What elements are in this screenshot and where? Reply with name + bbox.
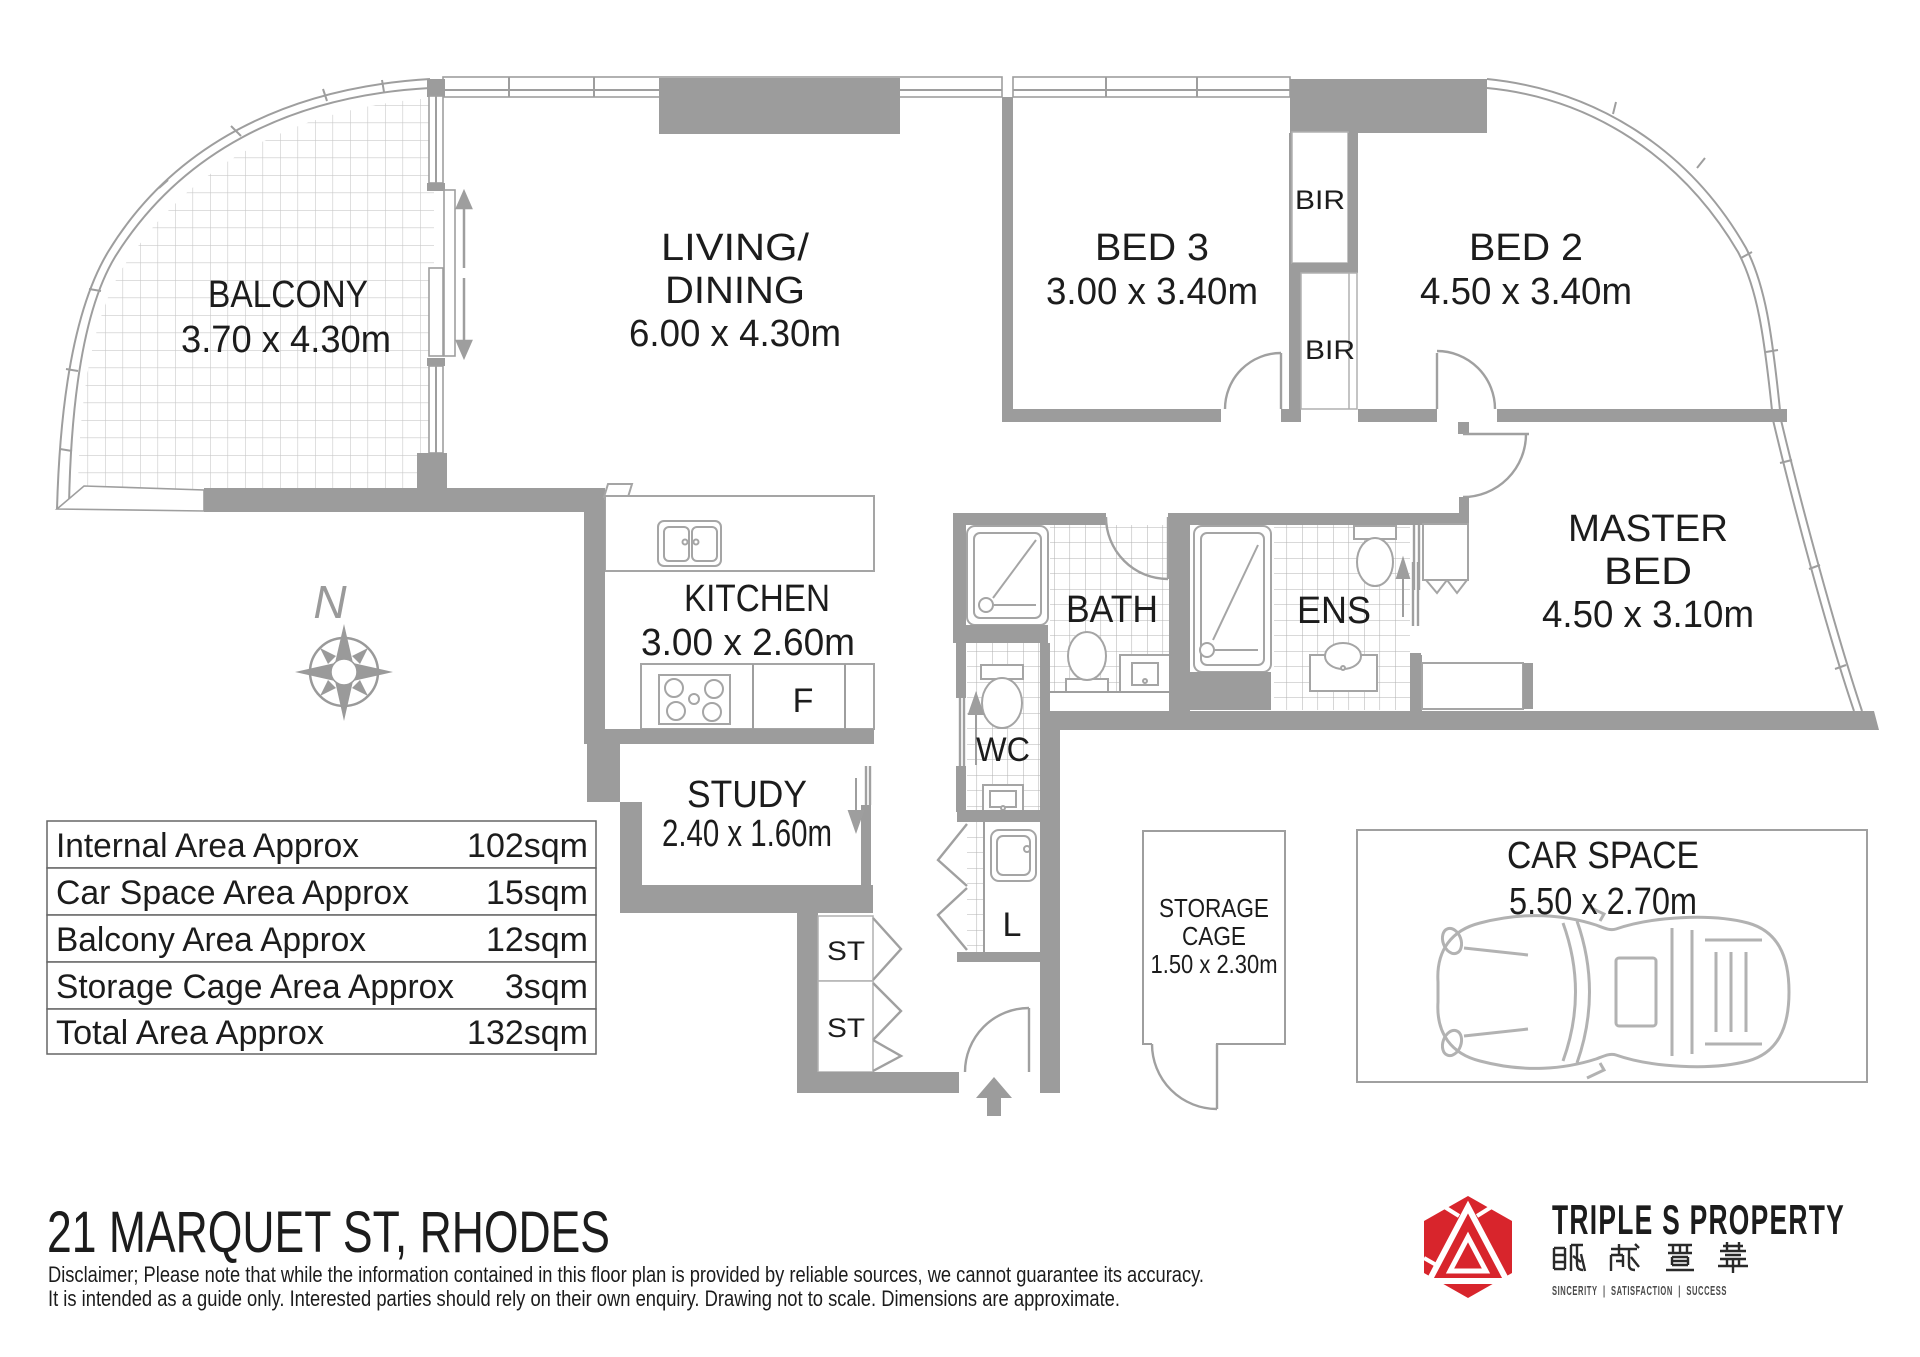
svg-text:3.00 x 3.40m: 3.00 x 3.40m (1046, 271, 1258, 313)
svg-text:STORAGE: STORAGE (1159, 893, 1269, 923)
svg-text:BATH: BATH (1066, 589, 1158, 631)
svg-text:102sqm: 102sqm (467, 827, 588, 865)
svg-text:CAGE: CAGE (1182, 921, 1246, 951)
svg-text:DINING: DINING (665, 270, 805, 312)
svg-text:SINCERITY | SATISFACTION |: SINCERITY | SATISFACTION | SUCCESS (1552, 1283, 1727, 1298)
svg-text:BIR: BIR (1305, 335, 1355, 365)
svg-text:Internal Area Approx: Internal Area Approx (56, 827, 359, 865)
svg-text:It is intended as a guide only: It is intended as a guide only. Interest… (48, 1286, 1120, 1311)
svg-text:Storage Cage Area Approx: Storage Cage Area Approx (56, 968, 454, 1006)
svg-text:BED 2: BED 2 (1469, 227, 1583, 269)
svg-text:N: N (313, 576, 347, 628)
svg-text:3.70 x 4.30m: 3.70 x 4.30m (181, 319, 391, 361)
svg-text:BED 3: BED 3 (1095, 227, 1209, 269)
svg-text:4.50 x 3.10m: 4.50 x 3.10m (1542, 594, 1754, 636)
svg-text:1.50 x 2.30m: 1.50 x 2.30m (1151, 949, 1278, 979)
svg-text:TRIPLE S PROPERTY: TRIPLE S PROPERTY (1552, 1196, 1845, 1243)
svg-text:6.00 x 4.30m: 6.00 x 4.30m (629, 313, 841, 355)
svg-text:ENS: ENS (1297, 590, 1371, 632)
svg-text:132sqm: 132sqm (467, 1014, 588, 1052)
svg-text:2.40 x 1.60m: 2.40 x 1.60m (662, 813, 832, 855)
svg-text:21 MARQUET ST, RHODES: 21 MARQUET ST, RHODES (47, 1200, 610, 1265)
svg-text:L: L (1003, 906, 1022, 944)
svg-text:Car Space Area Approx: Car Space Area Approx (56, 874, 409, 912)
svg-text:4.50 x 3.40m: 4.50 x 3.40m (1420, 271, 1632, 313)
svg-text:5.50 x 2.70m: 5.50 x 2.70m (1509, 881, 1697, 923)
svg-text:15sqm: 15sqm (486, 874, 588, 912)
svg-text:BIR: BIR (1295, 185, 1345, 215)
svg-text:STUDY: STUDY (687, 774, 807, 816)
svg-text:ST: ST (827, 936, 865, 966)
svg-text:BED: BED (1604, 551, 1692, 593)
svg-text:Balcony Area Approx: Balcony Area Approx (56, 921, 366, 959)
svg-text:CAR SPACE: CAR SPACE (1507, 835, 1699, 877)
svg-text:ST: ST (827, 1013, 865, 1043)
svg-text:3sqm: 3sqm (505, 968, 588, 1006)
svg-text:12sqm: 12sqm (486, 921, 588, 959)
svg-text:LIVING/: LIVING/ (661, 227, 809, 269)
svg-text:KITCHEN: KITCHEN (684, 578, 830, 620)
svg-text:BALCONY: BALCONY (208, 274, 368, 316)
svg-text:3.00 x 2.60m: 3.00 x 2.60m (641, 622, 855, 664)
svg-text:MASTER: MASTER (1568, 508, 1728, 550)
svg-text:Disclaimer; Please note that w: Disclaimer; Please note that while the i… (48, 1262, 1204, 1287)
svg-text:WC: WC (976, 731, 1030, 769)
svg-text:Total Area Approx: Total Area Approx (56, 1014, 324, 1052)
svg-text:F: F (793, 682, 814, 720)
